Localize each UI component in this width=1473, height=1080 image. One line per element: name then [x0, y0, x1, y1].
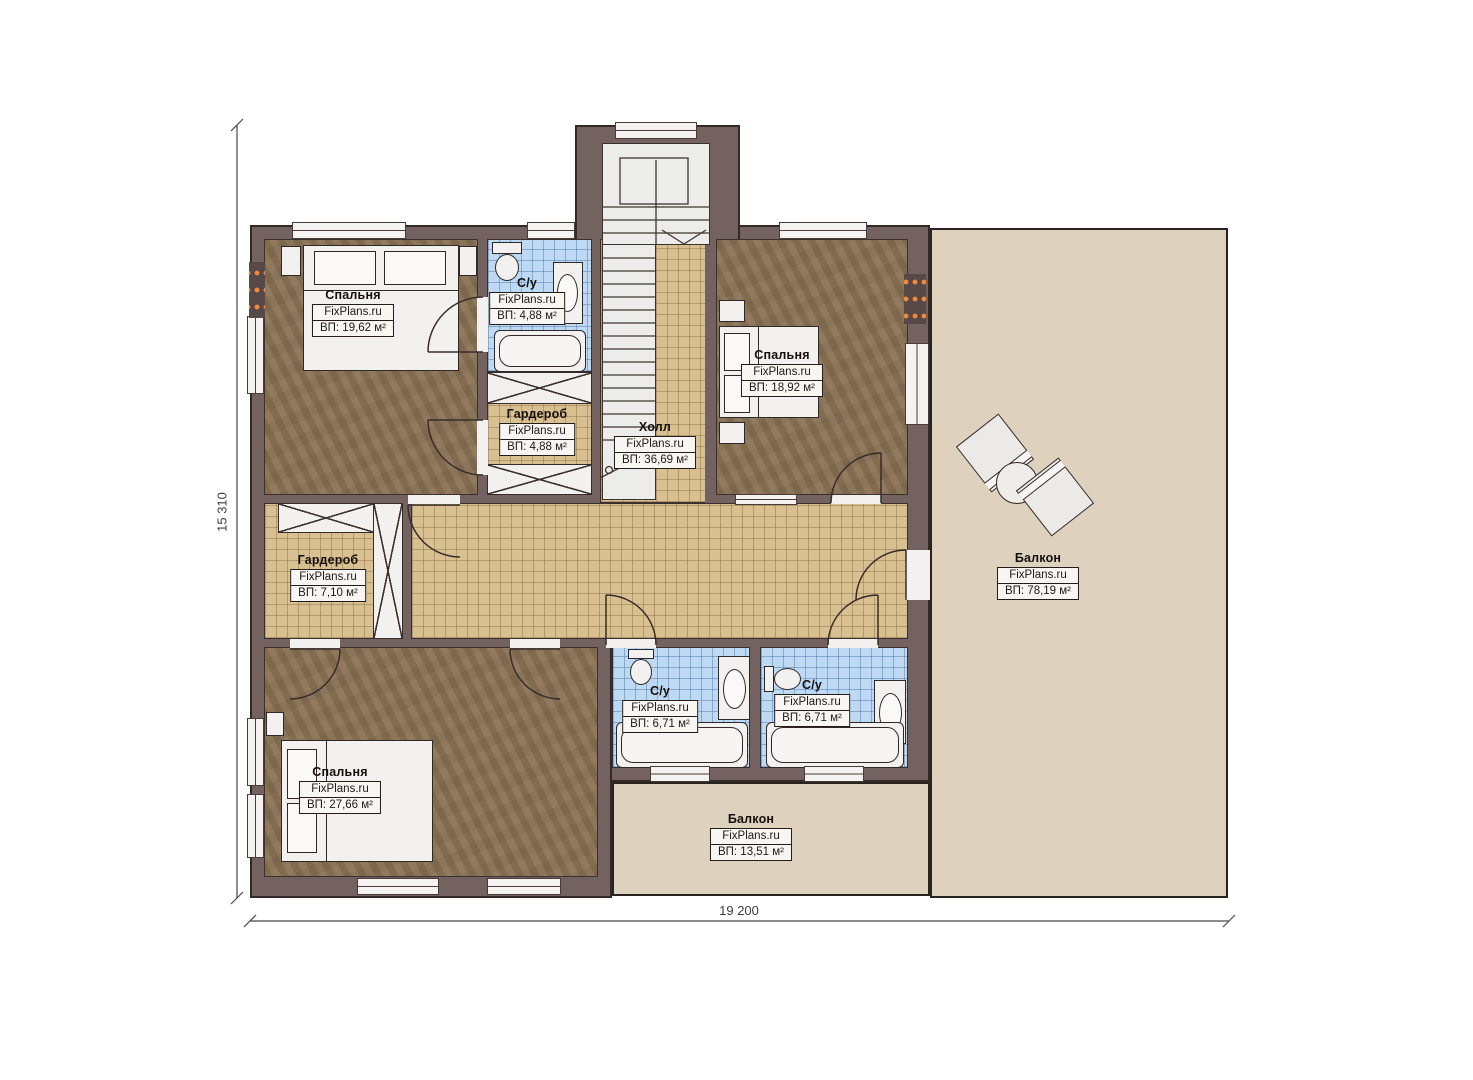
closet-cabinet: [487, 464, 592, 495]
window: [357, 878, 439, 895]
toilet-tank: [492, 242, 522, 254]
window: [292, 222, 406, 239]
watermark: FixPlans.ru: [775, 695, 849, 711]
watermark: FixPlans.ru: [313, 305, 393, 321]
room-name: С/у: [774, 678, 850, 692]
radiator-icon: [249, 262, 265, 318]
room-label-bathroom-top: С/у FixPlans.ru ВП: 4,88 м²: [489, 276, 565, 325]
nightstand: [459, 246, 477, 276]
bathtub: [494, 330, 586, 372]
pillow: [314, 251, 376, 285]
room-area: ВП: 27,66 м²: [300, 798, 380, 813]
watermark: FixPlans.ru: [623, 701, 697, 717]
watermark: FixPlans.ru: [711, 829, 791, 845]
nightstand: [719, 300, 745, 322]
window: [735, 494, 797, 505]
window: [905, 343, 929, 425]
sink: [723, 669, 746, 709]
room-label-wardrobe-top: Гардероб FixPlans.ru ВП: 4,88 м²: [499, 407, 575, 456]
closet-cabinet: [487, 372, 592, 404]
floor-plan-canvas: Спальня FixPlans.ru ВП: 19,62 м² С/у Fix…: [0, 0, 1473, 1080]
room-name: Спальня: [312, 288, 394, 302]
door-opening: [510, 639, 560, 648]
window: [779, 222, 867, 239]
closet-cabinet: [373, 503, 403, 639]
window: [247, 718, 264, 786]
door-opening: [477, 420, 488, 475]
room-name: Гардероб: [499, 407, 575, 421]
room-label-bedroom-top-right: Спальня FixPlans.ru ВП: 18,92 м²: [741, 348, 823, 397]
bathtub-basin: [771, 727, 899, 763]
nightstand: [719, 422, 745, 444]
room-area: ВП: 18,92 м²: [742, 381, 822, 396]
room-area: ВП: 7,10 м²: [291, 586, 365, 601]
room-name: Спальня: [299, 765, 381, 779]
door-opening: [477, 297, 488, 352]
room-area: ВП: 4,88 м²: [500, 440, 574, 455]
toilet-tank: [628, 649, 654, 659]
sink-counter: [718, 656, 750, 720]
window: [487, 878, 561, 895]
room-corridor: [411, 503, 908, 639]
door-opening: [290, 639, 340, 648]
stairs-upper-flight: [602, 143, 710, 245]
door-opening: [606, 639, 656, 648]
watermark: FixPlans.ru: [300, 782, 380, 798]
room-name: С/у: [622, 684, 698, 698]
watermark: FixPlans.ru: [500, 424, 574, 440]
bathtub-basin: [499, 335, 581, 367]
dimension-width: 19 200: [719, 903, 759, 918]
door-opening: [828, 639, 878, 648]
room-name: Спальня: [741, 348, 823, 362]
dimension-height: 15 310: [215, 492, 230, 532]
window: [247, 316, 264, 394]
radiator-icon: [904, 274, 926, 324]
room-area: ВП: 19,62 м²: [313, 321, 393, 336]
room-label-hall: Холл FixPlans.ru ВП: 36,69 м²: [614, 420, 696, 469]
room-label-balcony-right: Балкон FixPlans.ru ВП: 78,19 м²: [997, 551, 1079, 600]
room-label-wardrobe-left: Гардероб FixPlans.ru ВП: 7,10 м²: [290, 553, 366, 602]
room-label-bedroom-bottom-left: Спальня FixPlans.ru ВП: 27,66 м²: [299, 765, 381, 814]
room-area: ВП: 4,88 м²: [490, 309, 564, 324]
window: [527, 222, 575, 239]
window: [247, 794, 264, 858]
room-label-balcony-bottom: Балкон FixPlans.ru ВП: 13,51 м²: [710, 812, 792, 861]
nightstand: [281, 246, 301, 276]
toilet-tank: [764, 666, 774, 692]
door-opening: [408, 495, 460, 504]
room-label-bathroom-bottom-left: С/у FixPlans.ru ВП: 6,71 м²: [622, 684, 698, 733]
room-name: Холл: [614, 420, 696, 434]
pillow: [384, 251, 446, 285]
room-name: С/у: [489, 276, 565, 290]
room-area: ВП: 6,71 м²: [775, 711, 849, 726]
room-area: ВП: 6,71 м²: [623, 717, 697, 732]
nightstand: [266, 712, 284, 736]
room-name: Балкон: [710, 812, 792, 826]
room-area: ВП: 78,19 м²: [998, 584, 1078, 599]
bathtub: [766, 722, 904, 768]
door-opening-balcony: [906, 550, 930, 600]
watermark: FixPlans.ru: [998, 568, 1078, 584]
watermark: FixPlans.ru: [291, 570, 365, 586]
window: [615, 122, 697, 139]
watermark: FixPlans.ru: [615, 437, 695, 453]
room-area: ВП: 13,51 м²: [711, 845, 791, 860]
room-area: ВП: 36,69 м²: [615, 453, 695, 468]
window: [804, 766, 864, 782]
door-opening: [831, 495, 881, 504]
window: [650, 766, 710, 782]
toilet: [630, 659, 652, 685]
watermark: FixPlans.ru: [490, 293, 564, 309]
room-label-bedroom-top-left: Спальня FixPlans.ru ВП: 19,62 м²: [312, 288, 394, 337]
room-name: Балкон: [997, 551, 1079, 565]
closet-cabinet: [278, 503, 374, 533]
room-name: Гардероб: [290, 553, 366, 567]
watermark: FixPlans.ru: [742, 365, 822, 381]
room-label-bathroom-bottom-right: С/у FixPlans.ru ВП: 6,71 м²: [774, 678, 850, 727]
